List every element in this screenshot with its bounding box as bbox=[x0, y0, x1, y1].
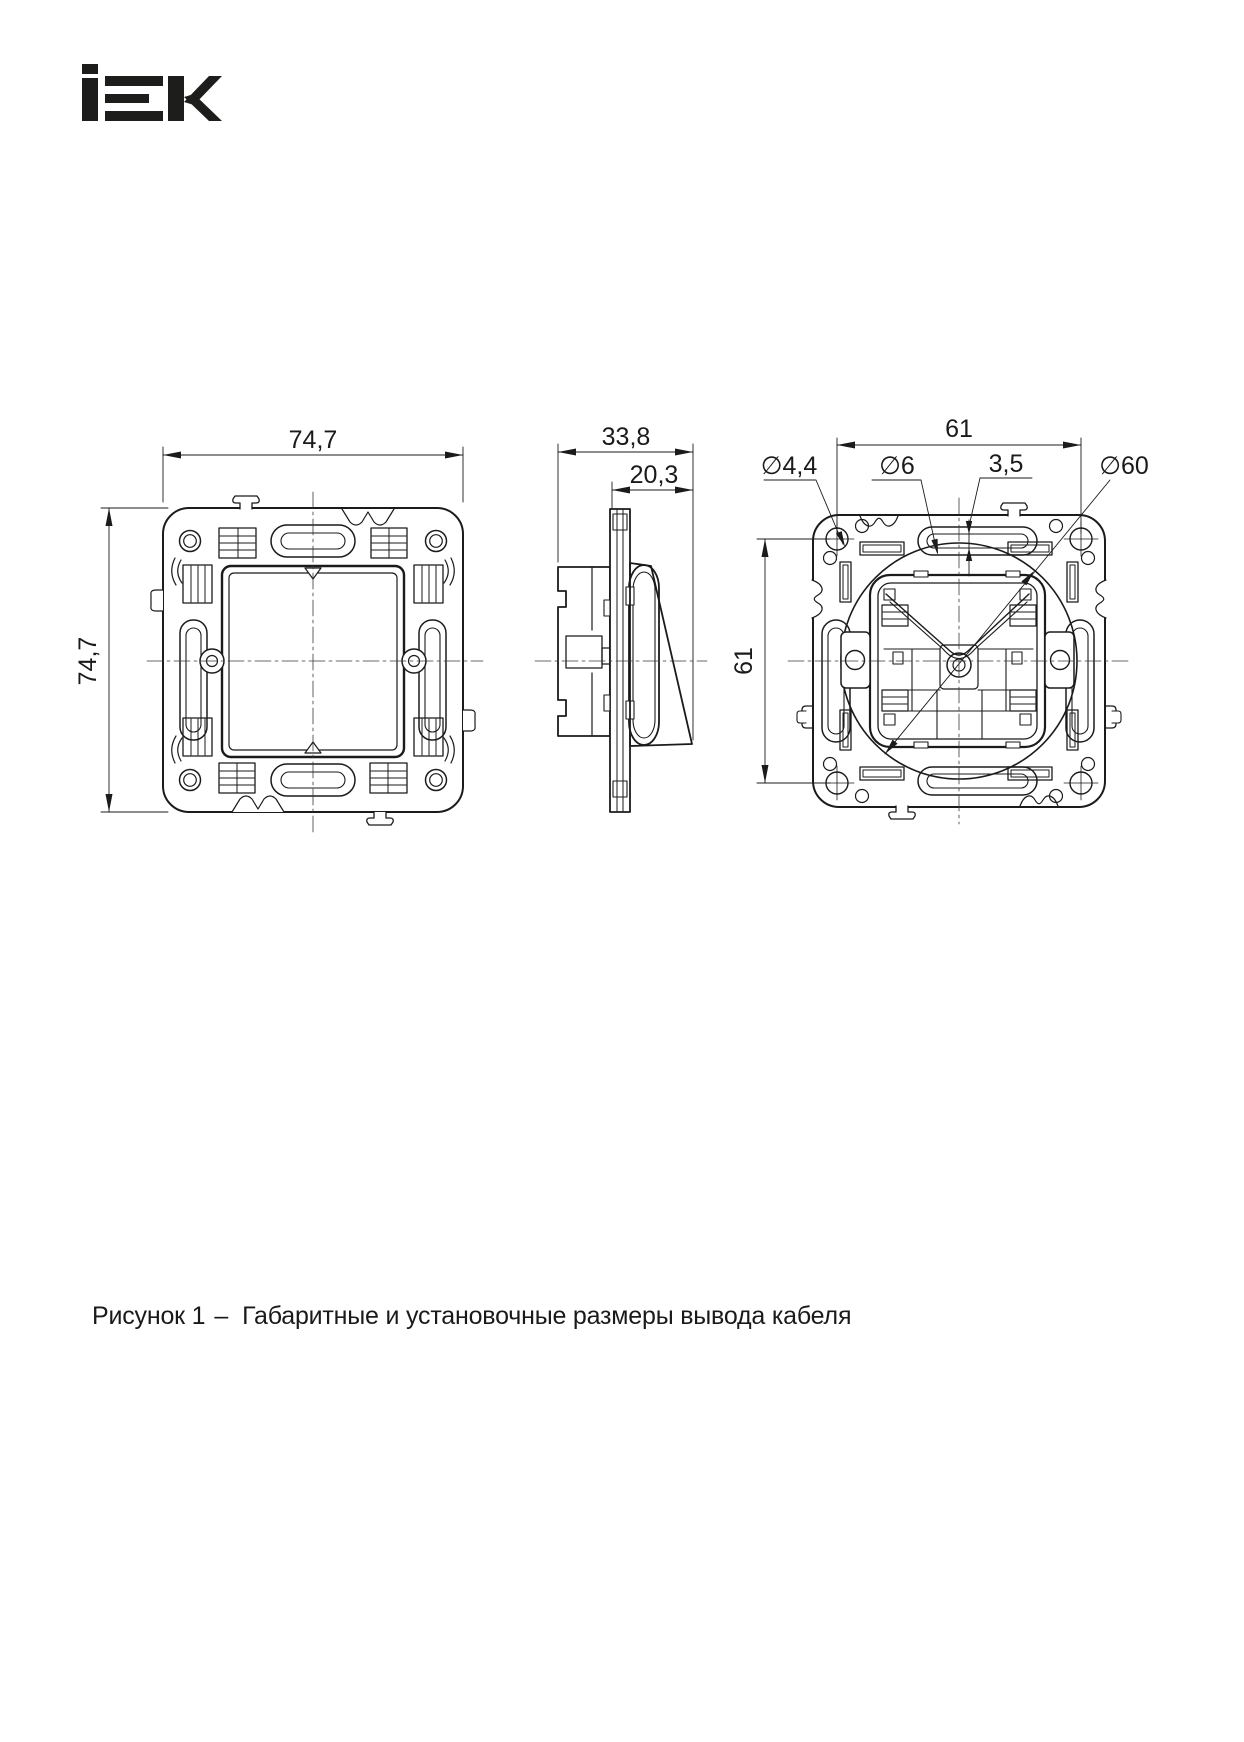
rear-body-dia-label: ∅60 bbox=[1099, 452, 1149, 480]
rear-slot-hole-dia-label: ∅6 bbox=[879, 452, 915, 480]
document-page: 74,7 74,7 bbox=[0, 0, 1244, 1742]
rear-screw-hole-dia-label: ∅4,4 bbox=[761, 452, 818, 480]
rear-view: 61 61 ∅4,4 ∅6 3,5 ∅60 bbox=[730, 415, 1149, 824]
side-housing bbox=[626, 565, 659, 745]
side-depth-mount-dim-label: 20,3 bbox=[630, 461, 679, 489]
rear-module bbox=[841, 571, 1074, 748]
front-view: 74,7 74,7 bbox=[74, 426, 483, 833]
front-height-dim-label: 74,7 bbox=[74, 637, 102, 686]
figure-caption: Рисунок 1–Габаритные и установочные разм… bbox=[92, 1302, 851, 1331]
figure-caption-label: Рисунок 1 bbox=[92, 1302, 205, 1330]
figure-caption-separator: – bbox=[214, 1302, 228, 1330]
rear-hole-spacing-h-label: 61 bbox=[945, 415, 973, 443]
technical-drawing: 74,7 74,7 bbox=[0, 0, 1244, 1742]
side-view: 33,8 20,3 bbox=[535, 423, 707, 812]
side-depth-total-dim-label: 33,8 bbox=[602, 423, 651, 451]
rear-slot-width-label: 3,5 bbox=[989, 450, 1024, 478]
rear-hole-spacing-v-label: 61 bbox=[730, 647, 758, 675]
figure-caption-text: Габаритные и установочные размеры вывода… bbox=[242, 1302, 851, 1330]
front-width-dim-label: 74,7 bbox=[289, 426, 338, 454]
